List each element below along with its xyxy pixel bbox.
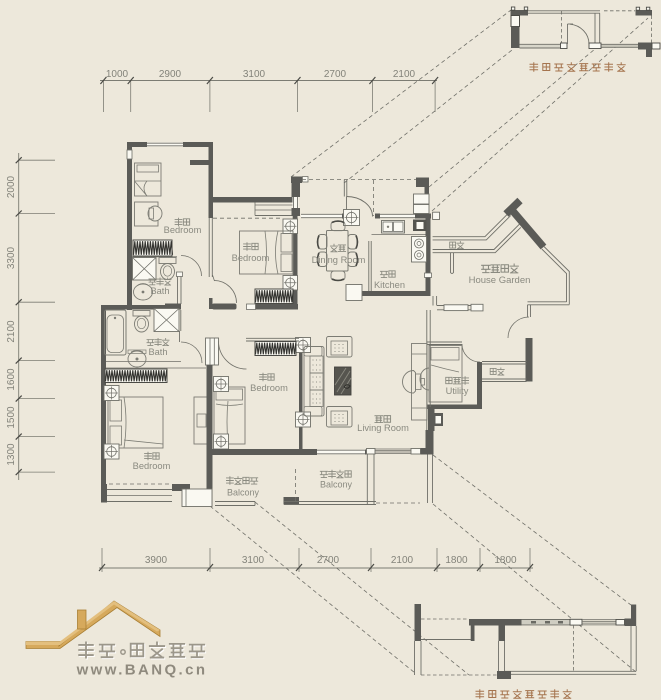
svg-text:Utility: Utility [446,386,469,396]
svg-text:2000: 2000 [6,175,17,198]
svg-text:Dining Room: Dining Room [312,255,366,265]
svg-text:2100: 2100 [391,555,414,566]
svg-text:2100: 2100 [6,320,17,343]
svg-text:www.BANQ.cn: www.BANQ.cn [76,662,208,679]
svg-text:1300: 1300 [6,443,17,466]
svg-text:1500: 1500 [6,406,17,429]
svg-text:Kitchen: Kitchen [374,280,405,290]
svg-text:Balcony: Balcony [227,488,260,498]
svg-text:Bath: Bath [150,286,169,296]
svg-text:1800: 1800 [445,555,468,566]
svg-text:Bedroom: Bedroom [250,383,288,393]
svg-text:Bedroom: Bedroom [133,461,171,471]
svg-text:3900: 3900 [145,555,168,566]
svg-text:Living Room: Living Room [357,423,409,433]
svg-text:1600: 1600 [6,368,17,391]
svg-text:2900: 2900 [159,69,182,80]
svg-text:3300: 3300 [6,246,17,269]
svg-text:2700: 2700 [324,69,347,80]
svg-text:Bedroom: Bedroom [232,253,270,263]
svg-text:House Garden: House Garden [469,275,531,286]
svg-text:2100: 2100 [393,69,416,80]
svg-text:1000: 1000 [106,69,129,80]
svg-text:3100: 3100 [243,69,266,80]
svg-text:3100: 3100 [242,555,265,566]
svg-text:2700: 2700 [317,555,340,566]
svg-text:Balcony: Balcony [320,480,353,490]
svg-text:Bedroom: Bedroom [164,225,202,235]
svg-text:Bath: Bath [148,347,167,357]
